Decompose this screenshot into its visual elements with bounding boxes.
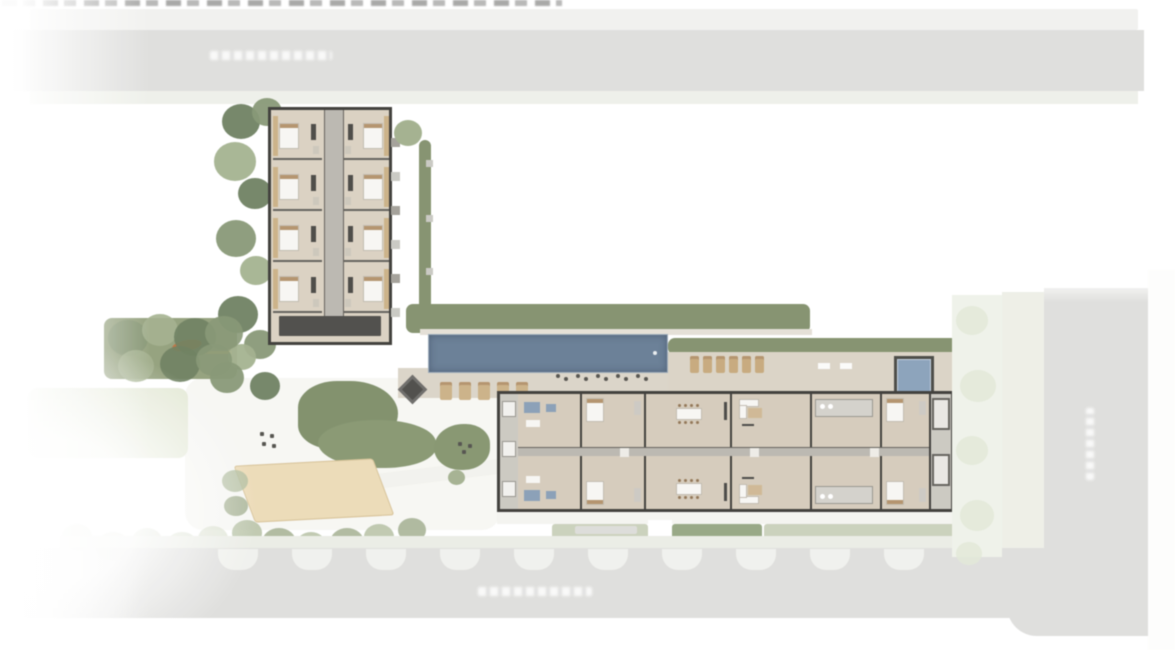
door-gap: [313, 197, 319, 205]
bed-headboard: [280, 124, 298, 128]
tv-icon: [742, 477, 754, 479]
bistro-table-icon: [556, 374, 560, 378]
sideboard-icon: [724, 483, 727, 501]
right-street: [1044, 288, 1148, 636]
bottom-street-name-label: [478, 587, 592, 596]
balcony-strip: [273, 116, 278, 156]
wardrobe-icon: [348, 124, 353, 140]
wardrobe-icon: [311, 277, 316, 293]
sofa-icon: [526, 476, 540, 483]
wardrobe-icon: [919, 488, 926, 502]
apartment-unit: [344, 265, 389, 313]
apartment-unit: [730, 394, 810, 447]
bed-icon: [280, 226, 298, 250]
south-block-east-balconies: [929, 394, 951, 509]
apartment-unit: [644, 394, 730, 447]
bench-icon: [426, 268, 433, 275]
tree-icon: [250, 372, 280, 400]
corridor-opening: [750, 448, 759, 457]
apartment-unit: [518, 456, 580, 509]
tree-icon: [160, 346, 200, 382]
sun-lounger-icon: [755, 356, 764, 373]
balcony-strip: [384, 269, 389, 309]
wardrobe-icon: [348, 226, 353, 242]
apartment-unit: [518, 394, 580, 447]
apartment-unit: [344, 163, 389, 211]
garden-bush: [434, 424, 490, 470]
chair-icon: [684, 496, 687, 499]
sink-icon: [820, 404, 825, 409]
sun-lounger-icon: [459, 382, 471, 400]
bed-icon: [364, 226, 382, 250]
bed-icon: [587, 482, 603, 504]
building-north-tower: [268, 107, 392, 345]
table-set-icon: [468, 444, 472, 448]
shrub-icon: [222, 470, 248, 492]
pool-table-icon: [546, 491, 556, 499]
dining-table-icon: [677, 484, 701, 494]
chair-icon: [678, 479, 681, 482]
apartment-unit: [273, 112, 322, 160]
tree-icon: [960, 500, 994, 531]
balcony-strip: [273, 218, 278, 258]
bed-headboard: [280, 226, 298, 230]
apartment-unit: [730, 456, 810, 509]
bench-icon: [426, 215, 433, 222]
sink-icon: [820, 494, 825, 499]
apartment-unit: [644, 456, 730, 509]
wardrobe-icon: [311, 175, 316, 191]
chair-icon: [696, 496, 699, 499]
rug-icon: [748, 408, 762, 418]
lap-pool: [428, 334, 668, 373]
tree-icon: [956, 306, 988, 335]
bistro-table-icon: [584, 377, 588, 381]
door-gap: [313, 248, 319, 256]
balcony-tab: [391, 308, 400, 317]
bed-icon: [587, 399, 603, 421]
door-gap: [345, 146, 351, 154]
bed-headboard: [887, 500, 903, 504]
balcony-strip: [384, 116, 389, 156]
sand-court: [234, 458, 395, 522]
bed-icon: [364, 124, 382, 148]
balcony-unit: [934, 456, 948, 484]
sun-lounger-icon: [690, 356, 699, 373]
bistro-table-icon: [636, 374, 640, 378]
rug-icon: [748, 485, 762, 495]
bistro-table-icon: [624, 377, 628, 381]
sun-lounger-icon: [742, 356, 751, 373]
east-sidewalk: [1002, 292, 1044, 548]
bench-icon: [426, 160, 433, 167]
door-gap: [313, 146, 319, 154]
bed-headboard: [364, 226, 382, 230]
sofa-icon: [526, 420, 540, 427]
apartment-unit: [580, 394, 644, 447]
apartment-unit: [273, 214, 322, 262]
balcony-strip: [384, 218, 389, 258]
door-gap: [345, 248, 351, 256]
tree-icon: [214, 142, 256, 181]
wardrobe-icon: [311, 226, 316, 242]
south-block-west-balconies: [500, 394, 518, 509]
planter: [503, 442, 515, 456]
table-set-icon: [272, 444, 276, 448]
bistro-table-icon: [576, 374, 580, 378]
path-chip: [575, 526, 637, 534]
apartment-unit: [273, 265, 322, 313]
bed-icon: [280, 124, 298, 148]
sun-lounger-icon: [729, 356, 738, 373]
bed-icon: [280, 277, 298, 301]
bistro-table-icon: [596, 374, 600, 378]
wardrobe-icon: [634, 401, 641, 415]
dining-table-icon: [677, 409, 701, 419]
bed-icon: [364, 277, 382, 301]
round-shrub: [448, 470, 465, 485]
chair-icon: [684, 479, 687, 482]
wc-icon: [828, 494, 833, 499]
top-street: [14, 30, 1144, 91]
pool-table-icon: [546, 404, 556, 412]
site-plan: [0, 0, 1175, 650]
bed-icon: [364, 175, 382, 199]
wc-icon: [828, 404, 833, 409]
balcony-strip: [273, 269, 278, 309]
top-street-verge: [30, 91, 1138, 104]
balcony-tab: [391, 206, 400, 215]
chair-icon: [696, 421, 699, 424]
table-set-icon: [458, 442, 462, 446]
chair-icon: [690, 421, 693, 424]
top-street-name-label: [210, 51, 332, 60]
door-gap: [313, 299, 319, 307]
sofa-icon: [524, 402, 540, 413]
sun-lounger-icon: [703, 356, 712, 373]
building-south-block: [497, 391, 952, 512]
right-street-name-label: [1086, 408, 1094, 480]
balcony-strip: [384, 167, 389, 207]
chair-icon: [690, 496, 693, 499]
table-set-icon: [260, 432, 264, 436]
sofa-icon: [740, 497, 758, 503]
bed-icon: [887, 399, 903, 421]
apartment-unit: [880, 456, 929, 509]
wardrobe-icon: [348, 277, 353, 293]
planter: [503, 482, 515, 496]
south-walkway: [497, 512, 952, 524]
apartment-unit: [580, 456, 644, 509]
bottom-sidewalk: [60, 536, 1060, 548]
balcony-unit: [934, 400, 948, 428]
bed-icon: [280, 175, 298, 199]
bed-headboard: [280, 277, 298, 281]
planter: [503, 402, 515, 416]
chair-icon: [678, 496, 681, 499]
chair-icon: [684, 404, 687, 407]
wardrobe-icon: [348, 175, 353, 191]
bistro-table-icon: [604, 377, 608, 381]
table-set-icon: [462, 450, 466, 454]
wardrobe-icon: [311, 124, 316, 140]
bistro-table-icon: [644, 377, 648, 381]
sofa-icon: [524, 490, 540, 501]
bed-headboard: [364, 277, 382, 281]
door-gap: [345, 299, 351, 307]
apartment-unit: [344, 112, 389, 160]
bed-headboard: [887, 399, 903, 403]
balcony-tab: [391, 172, 400, 181]
tree-icon: [238, 178, 272, 209]
sofa-icon: [740, 485, 746, 497]
terrace-bench: [818, 363, 830, 369]
balcony-strip: [273, 167, 278, 207]
chair-icon: [696, 404, 699, 407]
apartment-unit: [810, 394, 880, 447]
balcony-tab: [391, 274, 400, 283]
lawn-block: [28, 388, 188, 458]
apartment-unit: [344, 214, 389, 262]
tv-icon: [742, 424, 754, 426]
sun-lounger-icon: [440, 382, 452, 400]
chair-icon: [678, 421, 681, 424]
round-shrub: [394, 120, 422, 146]
corridor-opening: [870, 448, 879, 457]
table-set-icon: [262, 442, 266, 446]
chair-icon: [690, 479, 693, 482]
sun-lounger-icon: [716, 356, 725, 373]
bed-icon: [887, 482, 903, 504]
bed-headboard: [364, 124, 382, 128]
terrace-bench: [840, 363, 852, 369]
table-set-icon: [270, 434, 274, 438]
bed-headboard: [364, 175, 382, 179]
tree-icon: [956, 436, 988, 465]
bistro-table-icon: [564, 377, 568, 381]
corridor-opening: [620, 448, 629, 457]
pool-ladder-icon: [653, 351, 657, 355]
sun-lounger-icon: [478, 382, 490, 400]
door-gap: [345, 197, 351, 205]
bed-headboard: [587, 399, 603, 403]
apartment-unit: [273, 163, 322, 211]
balcony-tab: [391, 240, 400, 249]
bistro-table-icon: [616, 374, 620, 378]
tower-service-core: [279, 316, 381, 336]
tree-icon: [216, 220, 256, 257]
chair-icon: [678, 404, 681, 407]
apartment-unit: [810, 456, 880, 509]
chair-icon: [690, 404, 693, 407]
apartment-unit: [880, 394, 929, 447]
top-street-sidewalk: [30, 9, 1138, 30]
sofa-icon: [740, 406, 746, 418]
cropped-caption-text: [2, 0, 562, 6]
bed-headboard: [587, 500, 603, 504]
sideboard-icon: [724, 402, 727, 420]
wardrobe-icon: [634, 488, 641, 502]
chair-icon: [696, 479, 699, 482]
chair-icon: [684, 421, 687, 424]
tower-corridor: [324, 110, 344, 336]
wardrobe-icon: [919, 401, 926, 415]
bed-headboard: [280, 175, 298, 179]
east-margin: [1148, 270, 1175, 650]
